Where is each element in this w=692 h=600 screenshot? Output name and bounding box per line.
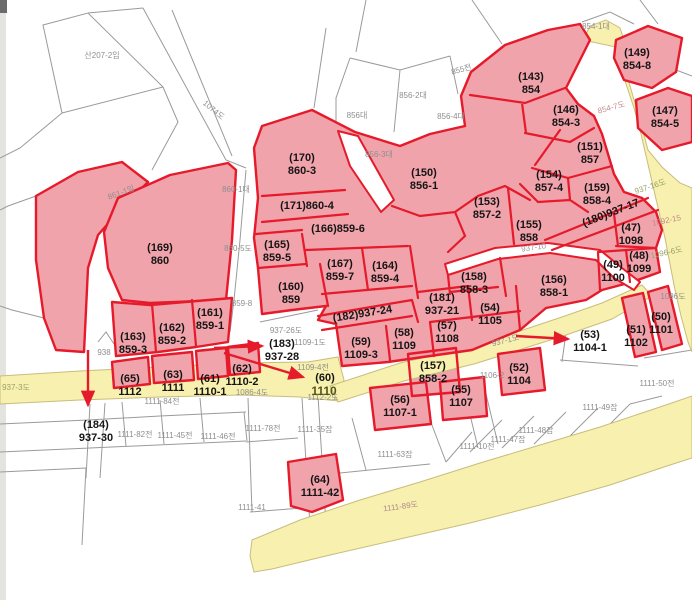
parcel-label-147: (147) — [652, 105, 678, 117]
parcel-label-184-lot: 937-30 — [79, 432, 113, 444]
background-parcel-label: 938 — [97, 348, 111, 357]
parcel-label-167-lot: 859-7 — [326, 271, 354, 283]
parcel-label-183: (183) — [269, 338, 295, 350]
parcel-label-51: (51) — [626, 324, 646, 336]
background-parcel-label: 1111-35잡 — [298, 424, 334, 434]
parcel-label-161-lot: 859-1 — [196, 320, 224, 332]
parcel-label-165-lot: 859-5 — [263, 252, 291, 264]
parcel-label-48-lot: 1099 — [627, 263, 651, 275]
background-parcel-label: 1109-4전 — [297, 362, 329, 372]
parcel-label-52-lot: 1104 — [507, 375, 532, 387]
parcel-label-153: (153) — [474, 196, 500, 208]
background-parcel-label: 860-5도 — [224, 244, 252, 253]
parcel-label-181: (181) — [429, 292, 455, 304]
parcel-label-147-lot: 854-5 — [651, 118, 679, 130]
parcel-label-151: (151) — [577, 141, 603, 153]
parcel-label-149: (149) — [624, 47, 650, 59]
parcel-label-143-lot: 854 — [522, 84, 541, 96]
parcel-label-157: (157) — [420, 360, 446, 372]
parcel-label-169-lot: 860 — [151, 255, 169, 267]
parcel-label-52: (52) — [509, 362, 529, 374]
parcel-label-171860-4: (171)860-4 — [280, 200, 335, 212]
background-parcel-label: 산207-2임 — [84, 50, 119, 60]
parcel-label-59-lot: 1109-3 — [344, 349, 378, 361]
parcel-label-149-lot: 854-8 — [623, 60, 651, 72]
parcel-label-47-lot: 1098 — [619, 235, 643, 247]
background-parcel-label: 1109-1도 — [294, 338, 326, 347]
parcel-label-55: (55) — [451, 384, 471, 396]
parcel-label-170-lot: 860-3 — [288, 165, 316, 177]
parcel-label-47: (47) — [621, 222, 641, 234]
parcel-label-155-lot: 858 — [520, 232, 538, 244]
parcel-label-143: (143) — [518, 71, 544, 83]
parcel-label-160-lot: 859 — [282, 294, 300, 306]
parcel-label-154: (154) — [536, 169, 562, 181]
parcel-label-54-lot: 1105 — [478, 315, 502, 327]
parcel-label-50: (50) — [651, 311, 671, 323]
parcel-label-159: (159) — [584, 182, 610, 194]
parcel-label-158-lot: 858-3 — [460, 284, 488, 296]
parcel-label-150: (150) — [411, 167, 437, 179]
background-parcel-label: 856-4대 — [437, 112, 465, 121]
parcel-label-58: (58) — [394, 327, 414, 339]
parcel-label-65: (65) — [120, 373, 140, 385]
background-parcel-label: 1111-84전 — [145, 396, 180, 406]
parcel-label-64: (64) — [310, 474, 330, 486]
background-parcel-label: 859-8 — [232, 299, 253, 308]
parcel-label-50-lot: 1101 — [649, 324, 673, 336]
parcel-label-156: (156) — [541, 274, 567, 286]
road-label: 937-3도 — [2, 383, 30, 392]
parcel-label-162: (162) — [159, 322, 185, 334]
parcel-label-54: (54) — [480, 302, 500, 314]
parcel-label-181-lot: 937-21 — [425, 305, 459, 317]
parcel-label-146: (146) — [553, 104, 579, 116]
parcel-label-170: (170) — [289, 152, 315, 164]
parcel-label-53-lot: 1104-1 — [573, 342, 607, 354]
parcel-label-153-lot: 857-2 — [473, 209, 501, 221]
background-parcel-label: 1074도 — [201, 99, 226, 122]
parcel-label-57-lot: 1108 — [435, 333, 459, 345]
parcel-label-59: (59) — [351, 336, 371, 348]
parcel-label-62-lot: 1110-2 — [225, 376, 258, 388]
parcel-label-57: (57) — [437, 320, 457, 332]
parcel-label-154-lot: 857-4 — [535, 182, 564, 194]
background-parcel-label: 1111-45전 — [158, 430, 193, 440]
parcel-label-56-lot: 1107-1 — [383, 407, 417, 419]
parcel-label-49: (49) — [603, 259, 623, 271]
scan-corner-mark — [0, 0, 7, 13]
parcel-label-165: (165) — [264, 239, 290, 251]
parcel-label-156-lot: 858-1 — [540, 287, 568, 299]
parcel-label-150-lot: 856-1 — [410, 180, 438, 192]
background-parcel-label: 856-2대 — [399, 91, 427, 100]
parcel-label-63: (63) — [163, 369, 183, 381]
parcel-label-169: (169) — [147, 242, 173, 254]
parcel-label-53: (53) — [580, 329, 600, 341]
road-label: 854-7도 — [597, 100, 626, 116]
background-parcel-label: 1111-41 — [238, 503, 266, 512]
road-label: 1096도 — [660, 292, 685, 301]
parcel-label-60: (60) — [315, 372, 335, 384]
parcel-label-161: (161) — [197, 307, 223, 319]
background-parcel-label: 1111-50전 — [640, 378, 675, 388]
background-parcel-label: 1111-49잡 — [583, 402, 619, 412]
parcel-label-166859-6: (166)859-6 — [311, 223, 365, 235]
parcel-label-146-lot: 854-3 — [552, 117, 580, 129]
background-parcel-label: 1111-78전 — [246, 423, 281, 433]
parcel-label-163: (163) — [120, 331, 146, 343]
parcel-label-157-lot: 858-2 — [419, 373, 447, 385]
parcel-label-164-lot: 859-4 — [371, 273, 400, 285]
parcel-label-61-lot: 1110-1 — [193, 386, 226, 398]
background-parcel-label: 1086-4도 — [236, 388, 268, 397]
background-parcel-label: 1111-10전 — [460, 441, 495, 451]
parcel-label-163-lot: 859-3 — [119, 344, 147, 356]
parcel-label-162-lot: 859-2 — [158, 335, 186, 347]
parcel-label-58-lot: 1109 — [392, 340, 416, 352]
parcel-56 — [370, 382, 431, 430]
parcel-label-183-lot: 937-28 — [265, 351, 299, 363]
cadastral-map-canvas: 산207-2임1074도855전854-1대856대856-2대856-4대85… — [0, 0, 692, 600]
parcel-label-167: (167) — [327, 258, 353, 270]
background-parcel-label: 1106-2 — [480, 371, 505, 380]
parcel-label-51-lot: 1102 — [624, 337, 648, 349]
background-parcel-label: 856-3대 — [365, 150, 393, 159]
parcel-label-49-lot: 1100 — [601, 272, 625, 284]
parcel-label-62: (62) — [232, 363, 252, 375]
parcel-label-61: (61) — [200, 373, 220, 385]
background-parcel-label: 1111-46전 — [201, 431, 236, 441]
background-parcel-label: 1111-48잡 — [519, 425, 555, 435]
cadastral-map-page: 산207-2임1074도855전854-1대856대856-2대856-4대85… — [0, 0, 692, 600]
background-parcel-label: 1111-47잡 — [491, 434, 527, 444]
parcel-label-64-lot: 1111-42 — [301, 487, 340, 499]
parcel-label-56: (56) — [390, 394, 410, 406]
parcel-label-55-lot: 1107 — [449, 397, 473, 409]
parcel-label-160: (160) — [278, 281, 304, 293]
parcel-label-151-lot: 857 — [581, 154, 599, 166]
background-parcel-label: 854-1대 — [582, 22, 610, 31]
parcel-label-184: (184) — [83, 419, 109, 431]
background-parcel-label: 856대 — [347, 111, 368, 120]
scan-edge — [0, 0, 6, 600]
background-parcel-label: 860-1대 — [222, 185, 250, 194]
background-parcel-label: 1111-82전 — [118, 429, 153, 439]
parcel-label-159-lot: 858-4 — [583, 195, 612, 207]
parcel-label-48: (48) — [629, 250, 649, 262]
parcel-label-65-lot: 1112 — [118, 386, 141, 398]
background-parcel-label: 937-26도 — [270, 326, 302, 335]
parcel-label-158: (158) — [461, 271, 487, 283]
parcel-label-63-lot: 1111 — [162, 382, 185, 394]
road-label: 1110 — [311, 384, 337, 398]
parcel-label-164: (164) — [372, 260, 398, 272]
parcel-label-155: (155) — [516, 219, 542, 231]
background-parcel-label: 1111-63잡 — [378, 449, 414, 459]
